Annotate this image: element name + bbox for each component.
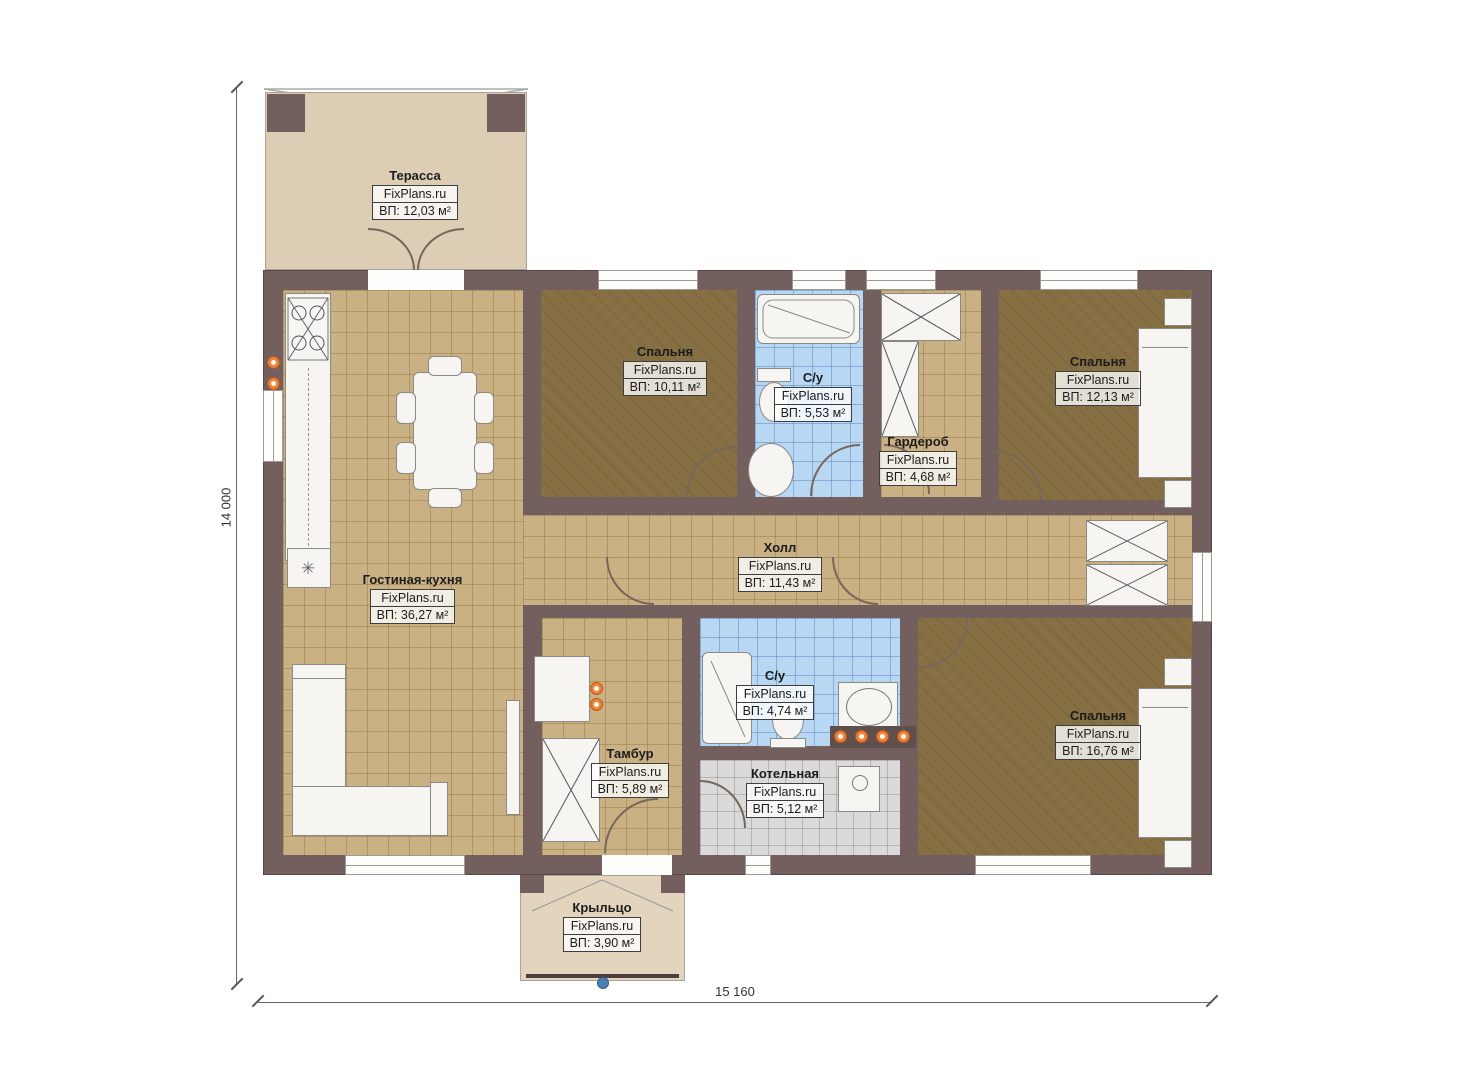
watermark: FixPlans.ru xyxy=(775,388,852,404)
watermark: FixPlans.ru xyxy=(1056,372,1140,388)
nightstand xyxy=(1164,480,1192,508)
dimension-tick xyxy=(1206,995,1219,1008)
label-bathroom-top: С/у FixPlans.ru ВП: 5,53 м² xyxy=(748,370,878,422)
sofa-armrest xyxy=(430,782,448,836)
room-area: ВП: 5,89 м² xyxy=(592,780,669,797)
window xyxy=(1192,552,1212,622)
label-hall: Холл FixPlans.ru ВП: 11,43 м² xyxy=(710,540,850,592)
dimension-height: 14 000 xyxy=(219,468,234,548)
chair-icon xyxy=(428,488,462,508)
snowflake-icon: ✳ xyxy=(301,560,315,577)
label-wardrobe: Гардероб FixPlans.ru ВП: 4,68 м² xyxy=(848,434,988,486)
room-area: ВП: 5,53 м² xyxy=(775,404,852,421)
stove-icon xyxy=(287,297,329,361)
bathtub-icon xyxy=(757,294,860,344)
toilet-icon xyxy=(770,738,806,748)
watermark: FixPlans.ru xyxy=(624,362,707,378)
watermark: FixPlans.ru xyxy=(1056,726,1140,742)
floor-plan-canvas: ✳ xyxy=(0,0,1474,1080)
dining-table xyxy=(413,372,477,490)
chair-icon xyxy=(474,442,494,474)
room-name: Спальня xyxy=(595,344,735,359)
terrace-post-icon xyxy=(487,94,525,132)
room-name: Крыльцо xyxy=(532,900,672,915)
label-bedroom-bottom-right: Спальня FixPlans.ru ВП: 16,76 м² xyxy=(1028,708,1168,760)
label-vestibule: Тамбур FixPlans.ru ВП: 5,89 м² xyxy=(560,746,700,798)
room-name: С/у xyxy=(748,370,878,385)
label-porch: Крыльцо FixPlans.ru ВП: 3,90 м² xyxy=(532,900,672,952)
label-living-kitchen: Гостиная-кухня FixPlans.ru ВП: 36,27 м² xyxy=(335,572,490,624)
watermark: FixPlans.ru xyxy=(592,764,669,780)
room-area: ВП: 36,27 м² xyxy=(371,606,455,623)
corner-sofa xyxy=(292,786,434,836)
chair-icon xyxy=(396,442,416,474)
light-icon xyxy=(834,730,847,743)
light-icon xyxy=(590,698,603,711)
room-area: ВП: 16,76 м² xyxy=(1056,742,1140,759)
window xyxy=(263,390,283,462)
dimension-line-horizontal xyxy=(258,1002,1212,1003)
terrace-post-icon xyxy=(267,94,305,132)
room-area: ВП: 11,43 м² xyxy=(739,574,822,591)
window xyxy=(975,855,1091,875)
nightstand xyxy=(1164,298,1192,326)
node-icon xyxy=(597,977,609,989)
dimension-tick xyxy=(231,81,244,94)
window xyxy=(792,270,846,290)
room-area: ВП: 4,68 м² xyxy=(880,468,957,485)
terrace-door-opening xyxy=(368,270,464,290)
window xyxy=(345,855,465,875)
watermark: FixPlans.ru xyxy=(373,186,457,202)
room-area: ВП: 12,03 м² xyxy=(373,202,457,219)
wardrobe-icon xyxy=(881,293,961,341)
room-name: Гардероб xyxy=(848,434,988,449)
tv-stand xyxy=(506,700,520,815)
window xyxy=(1040,270,1138,290)
watermark: FixPlans.ru xyxy=(739,558,822,574)
light-icon xyxy=(876,730,889,743)
window xyxy=(598,270,698,290)
light-icon xyxy=(855,730,868,743)
chair-icon xyxy=(428,356,462,376)
room-area: ВП: 4,74 м² xyxy=(737,702,814,719)
dimension-line-vertical xyxy=(236,88,237,985)
wardrobe-icon xyxy=(1086,564,1168,606)
room-area: ВП: 10,11 м² xyxy=(624,378,707,395)
light-icon xyxy=(267,356,280,369)
light-icon xyxy=(897,730,910,743)
chair-icon xyxy=(396,392,416,424)
dimension-tick xyxy=(231,978,244,991)
counter-divider xyxy=(308,368,309,556)
entrance-door-opening xyxy=(602,855,672,875)
room-name: Спальня xyxy=(1028,354,1168,369)
room-name: Гостиная-кухня xyxy=(335,572,490,587)
window xyxy=(866,270,936,290)
room-name: Котельная xyxy=(715,766,855,781)
wardrobe-icon xyxy=(1086,520,1168,562)
watermark: FixPlans.ru xyxy=(371,590,455,606)
light-icon xyxy=(267,377,280,390)
cabinet xyxy=(534,656,590,722)
label-bedroom-top-left: Спальня FixPlans.ru ВП: 10,11 м² xyxy=(595,344,735,396)
wardrobe-icon xyxy=(881,341,919,437)
room-name: Терасса xyxy=(345,168,485,183)
sink-icon xyxy=(748,443,794,497)
label-terrace: Терасса FixPlans.ru ВП: 12,03 м² xyxy=(345,168,485,220)
dimension-width: 15 160 xyxy=(690,984,780,999)
room-name: Спальня xyxy=(1028,708,1168,723)
vanity-sink xyxy=(838,682,898,730)
label-bedroom-top-right: Спальня FixPlans.ru ВП: 12,13 м² xyxy=(1028,354,1168,406)
watermark: FixPlans.ru xyxy=(564,918,641,934)
room-area: ВП: 12,13 м² xyxy=(1056,388,1140,405)
watermark: FixPlans.ru xyxy=(747,784,824,800)
room-area: ВП: 3,90 м² xyxy=(564,934,641,951)
nightstand xyxy=(1164,658,1192,686)
room-name: С/у xyxy=(710,668,840,683)
chair-icon xyxy=(474,392,494,424)
watermark: FixPlans.ru xyxy=(737,686,814,702)
room-name: Холл xyxy=(710,540,850,555)
room-name: Тамбур xyxy=(560,746,700,761)
room-area: ВП: 5,12 м² xyxy=(747,800,824,817)
light-icon xyxy=(590,682,603,695)
nightstand xyxy=(1164,840,1192,868)
dimension-tick xyxy=(252,995,265,1008)
label-bathroom-bottom: С/у FixPlans.ru ВП: 4,74 м² xyxy=(710,668,840,720)
window xyxy=(745,855,771,875)
label-boiler: Котельная FixPlans.ru ВП: 5,12 м² xyxy=(715,766,855,818)
watermark: FixPlans.ru xyxy=(880,452,957,468)
